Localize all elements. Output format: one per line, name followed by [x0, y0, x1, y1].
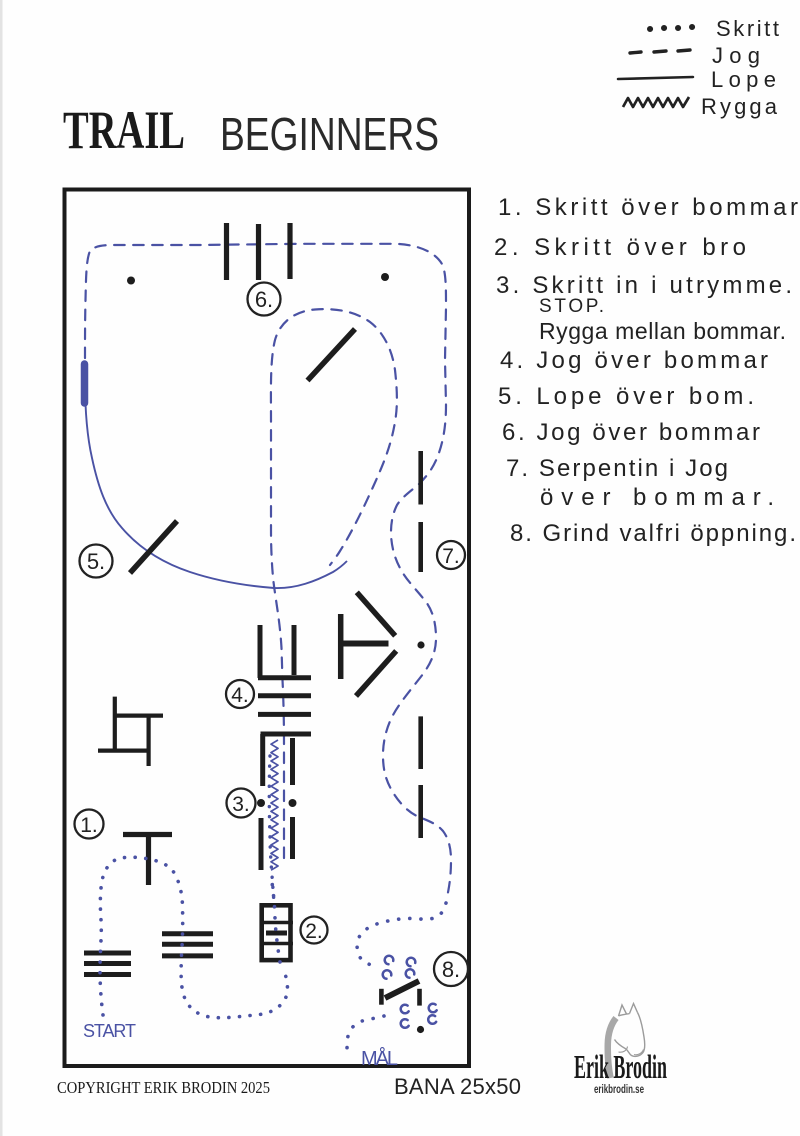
svg-text:6. Jog över bommar: 6. Jog över bommar: [502, 419, 760, 446]
svg-text:Jog: Jog: [712, 43, 760, 68]
svg-text:Lope: Lope: [711, 67, 776, 92]
svg-text:1.: 1.: [80, 814, 98, 837]
svg-text:3. Skritt in i utrymme.: 3. Skritt in i utrymme.: [496, 272, 792, 299]
svg-text:4.: 4.: [231, 684, 249, 707]
svg-text:5. Lope över bom.: 5. Lope över bom.: [498, 383, 754, 410]
svg-text:över bommar.: över bommar.: [540, 484, 774, 511]
svg-text:Erik Brodin: Erik Brodin: [574, 1049, 667, 1086]
svg-text:6.: 6.: [255, 287, 273, 312]
svg-text:2.: 2.: [305, 920, 323, 943]
svg-text:COPYRIGHT ERIK BRODIN 2025: COPYRIGHT ERIK BRODIN 2025: [57, 1078, 270, 1097]
svg-text:BEGINNERS: BEGINNERS: [220, 108, 439, 160]
svg-text:1. Skritt över bommar: 1. Skritt över bommar: [498, 194, 798, 221]
svg-text:7. Serpentin i Jog: 7. Serpentin i Jog: [506, 455, 728, 482]
svg-text:STOP.: STOP.: [539, 296, 604, 317]
svg-text:MÅL: MÅL: [361, 1047, 398, 1070]
svg-text:2. Skritt över bro: 2. Skritt över bro: [494, 234, 746, 261]
svg-text:TRAIL: TRAIL: [63, 100, 185, 160]
svg-text:erikbrodin.se: erikbrodin.se: [594, 1082, 644, 1096]
svg-text:4. Jog över bommar: 4. Jog över bommar: [500, 347, 768, 374]
svg-text:8.: 8.: [442, 957, 460, 982]
svg-text:Skritt: Skritt: [716, 16, 779, 41]
svg-text:START: START: [83, 1021, 136, 1041]
svg-text:3.: 3.: [232, 793, 250, 816]
svg-text:Rygga: Rygga: [701, 94, 778, 119]
svg-text:8. Grind valfri öppning.: 8. Grind valfri öppning.: [510, 520, 796, 547]
svg-text:Rygga mellan bommar.: Rygga mellan bommar.: [539, 318, 786, 344]
svg-text:BANA 25x50: BANA 25x50: [394, 1074, 521, 1099]
svg-text:7.: 7.: [442, 545, 460, 568]
svg-text:5.: 5.: [87, 549, 105, 574]
